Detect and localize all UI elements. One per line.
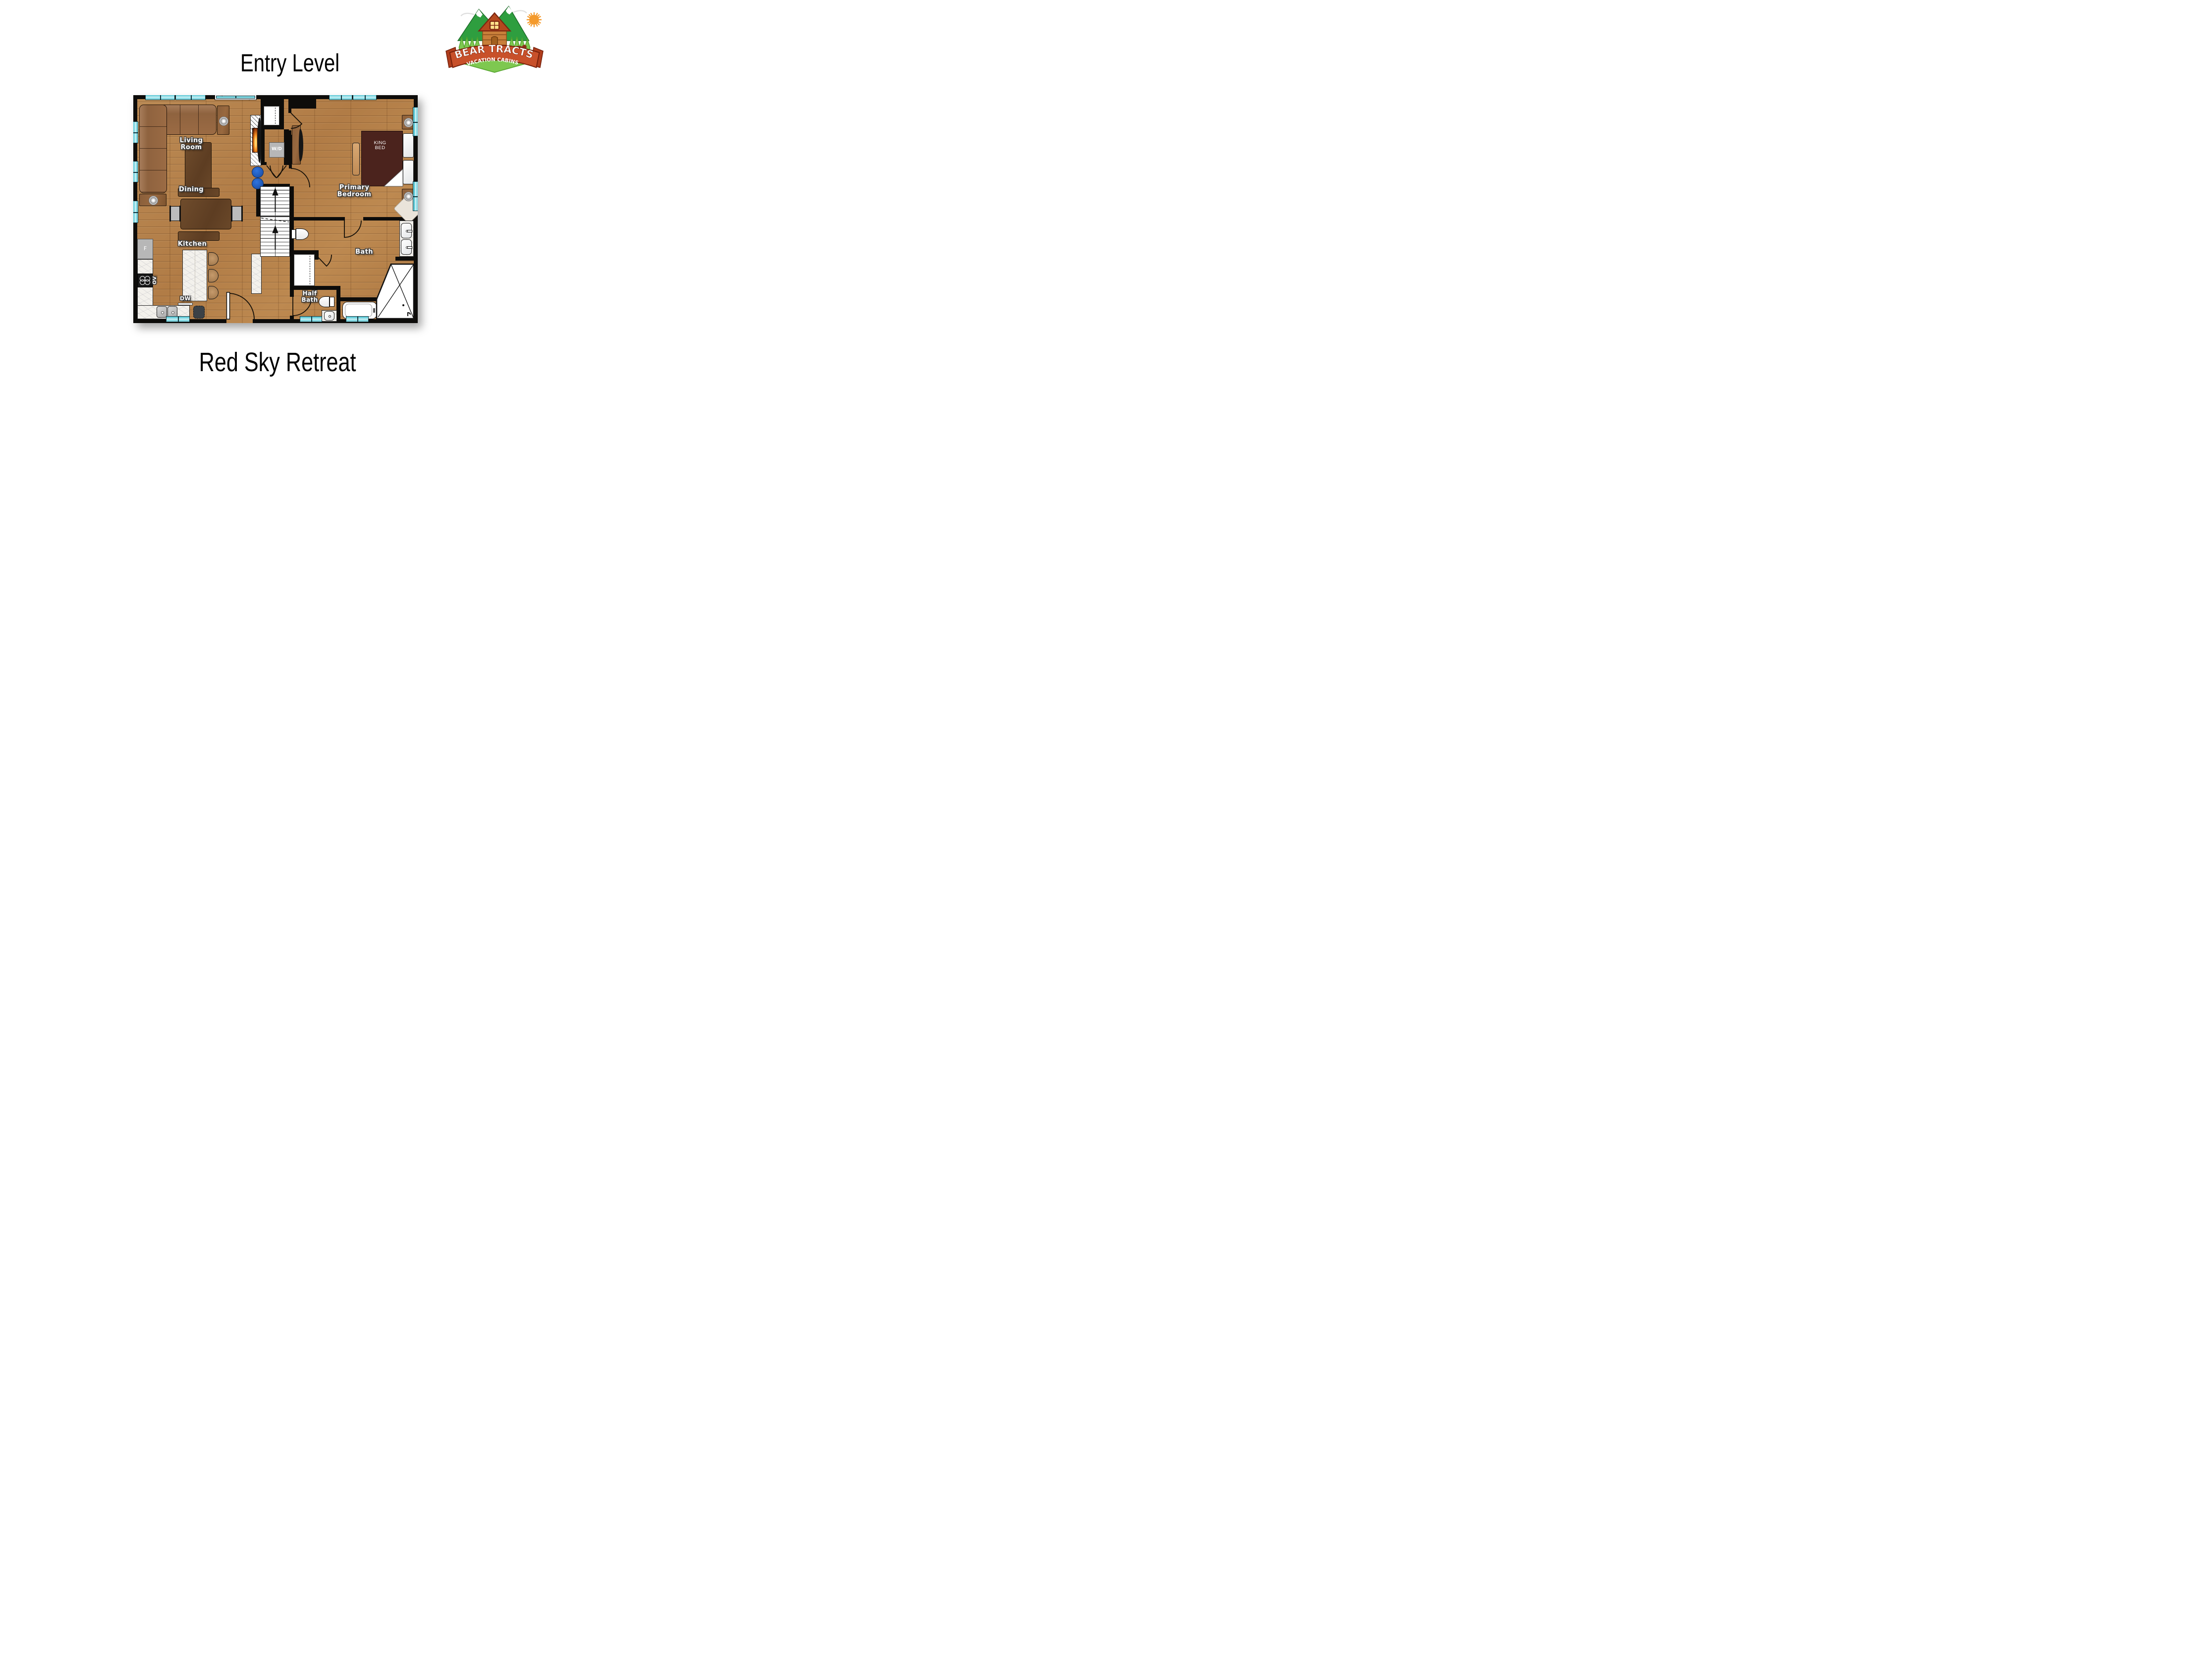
door-bath [344,221,361,237]
door-wd-leaves [267,166,286,178]
label-living-line1: Living [180,137,203,144]
bed-blanket-fold [384,169,403,186]
plan-annotations [133,95,418,323]
label-halfbath-line1: Half [302,290,317,297]
door-entry-arc [228,293,254,319]
king-bed-label-line1: KING [374,140,387,146]
door-bedroom-upper [291,113,302,128]
king-bed-label: KING BED [365,141,395,151]
door-bedroom-lower [291,168,310,187]
entry-door-leaf [227,292,230,319]
walkin-shower [377,264,414,319]
oven-label: OV [152,274,159,287]
stair-up-arrows [273,188,278,250]
floor-plan: → ← W/D [133,95,418,323]
company-logo: BEAR TRACTS VACATION CABINS [439,2,551,79]
label-halfbath-line2: Bath [301,296,318,303]
floor-plan-page: Entry Level [0,0,553,415]
label-bedroom-line2: Bedroom [337,191,372,198]
stair-break-line [261,218,289,222]
label-living-room: Living Room [172,137,211,152]
label-dining: Dining [176,186,207,193]
label-bedroom-line1: Primary [339,184,369,191]
refrigerator-label: F [137,245,153,252]
label-kitchen: Kitchen [175,241,210,248]
label-bath: Bath [351,249,377,256]
page-title: Entry Level [131,49,448,77]
king-bed-label-line2: BED [375,145,386,151]
logo-graphic: BEAR TRACTS VACATION CABINS [439,2,551,79]
door-linen-closet [316,255,332,266]
label-half-bath: Half Bath [297,290,323,303]
property-name: Red Sky Retreat [119,347,436,378]
dishwasher-label: DW [177,296,194,302]
label-primary-bedroom: Primary Bedroom [331,184,378,199]
label-living-line2: Room [180,144,202,151]
washer-dryer-label: W/D [269,147,284,152]
logo-sun-icon [527,12,542,27]
